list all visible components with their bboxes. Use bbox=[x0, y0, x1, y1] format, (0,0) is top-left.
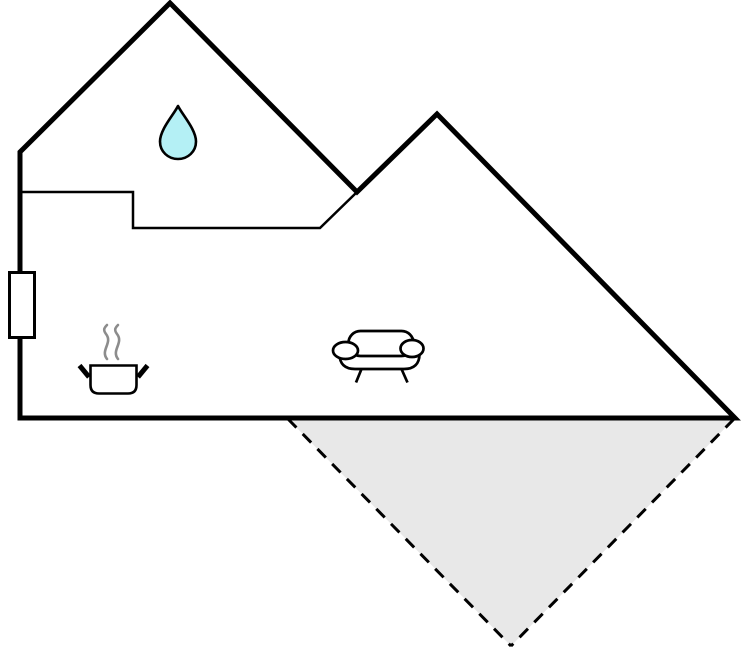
sofa-icon bbox=[333, 331, 424, 383]
terrace-fill bbox=[288, 419, 734, 646]
pot-right-handle bbox=[138, 366, 148, 378]
terrace-area bbox=[288, 419, 734, 646]
interior-wall bbox=[20, 192, 357, 228]
window-icon bbox=[10, 273, 35, 338]
sofa-legs bbox=[356, 369, 408, 383]
water-drop-icon bbox=[160, 106, 196, 159]
cooking-pot-icon bbox=[80, 325, 148, 394]
floor-plan bbox=[0, 0, 743, 652]
pot-left-handle bbox=[80, 366, 90, 378]
steam-icon bbox=[104, 325, 119, 359]
sofa-right-armrest bbox=[401, 340, 424, 357]
sofa-left-armrest bbox=[333, 342, 358, 359]
pot-body bbox=[91, 366, 137, 394]
